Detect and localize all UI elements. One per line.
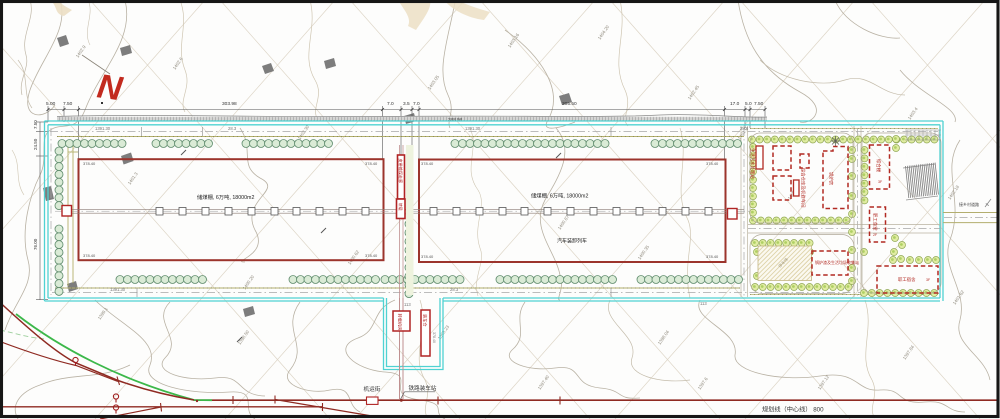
svg-text:378.40: 378.40	[365, 253, 378, 258]
svg-text:305.50: 305.50	[562, 101, 577, 107]
svg-text:装车仓: 装车仓	[422, 314, 429, 327]
svg-text:锅炉渣及生活垃圾收集站: 锅炉渣及生活垃圾收集站	[815, 259, 859, 265]
svg-text:储煤棚, 6万吨, 18000m2: 储煤棚, 6万吨, 18000m2	[531, 192, 588, 200]
svg-text:7.50: 7.50	[754, 101, 764, 107]
svg-text:锅炉房: 锅炉房	[828, 172, 835, 186]
svg-text:7.0: 7.0	[413, 101, 420, 107]
svg-text:规划线（中心线） 800: 规划线（中心线） 800	[762, 406, 824, 414]
svg-text:1391.30: 1391.30	[465, 126, 481, 131]
svg-text:职工食堂: 职工食堂	[872, 213, 879, 231]
svg-text:生活污水处理站: 生活污水处理站	[749, 148, 756, 179]
svg-text:机运街: 机运街	[364, 385, 381, 393]
svg-text:378.40: 378.40	[365, 161, 378, 166]
svg-text:1391.30: 1391.30	[95, 126, 111, 131]
svg-text:7.50: 7.50	[63, 101, 73, 107]
svg-text:24.50: 24.50	[33, 138, 38, 150]
svg-text:汽车装卸列车: 汽车装卸列车	[557, 238, 587, 245]
svg-text:28.3: 28.3	[228, 126, 237, 131]
svg-text:113: 113	[404, 302, 411, 307]
svg-text:378.40: 378.40	[83, 253, 96, 258]
svg-text:378.40: 378.40	[432, 332, 436, 343]
svg-text:铁路装车站: 铁路装车站	[409, 384, 437, 392]
svg-text:378.40: 378.40	[421, 254, 434, 259]
svg-text:转载机房: 转载机房	[397, 314, 404, 331]
svg-text:接乡村道路: 接乡村道路	[959, 201, 979, 207]
svg-text:378.40: 378.40	[83, 161, 96, 166]
svg-text:职工宿舍: 职工宿舍	[898, 276, 916, 283]
svg-text:5.0: 5.0	[745, 101, 752, 107]
svg-text:378.40: 378.40	[706, 254, 719, 259]
svg-text:5.00: 5.00	[46, 101, 56, 107]
svg-text:378.40: 378.40	[706, 161, 719, 166]
svg-text:3.5: 3.5	[403, 101, 410, 107]
svg-text:76.00: 76.00	[33, 238, 38, 250]
svg-text:303.98: 303.98	[222, 101, 237, 107]
svg-text:1391.30: 1391.30	[110, 287, 126, 292]
svg-text:皮带输煤走廊: 皮带输煤走廊	[398, 159, 404, 184]
svg-text:17.0: 17.0	[730, 101, 740, 107]
svg-text:综合仓库及机修车间: 综合仓库及机修车间	[800, 168, 807, 208]
svg-text:113: 113	[700, 301, 707, 306]
svg-text:7.50: 7.50	[33, 120, 38, 129]
svg-text:378.40: 378.40	[421, 161, 434, 166]
svg-text:7.0: 7.0	[387, 101, 394, 107]
svg-text:储煤棚, 6万吨, 18000m2: 储煤棚, 6万吨, 18000m2	[197, 193, 254, 201]
svg-text:综合楼: 综合楼	[875, 159, 882, 173]
svg-text:28.3: 28.3	[740, 126, 749, 131]
svg-text:28.3: 28.3	[450, 287, 459, 292]
svg-text:转载: 转载	[398, 203, 403, 211]
